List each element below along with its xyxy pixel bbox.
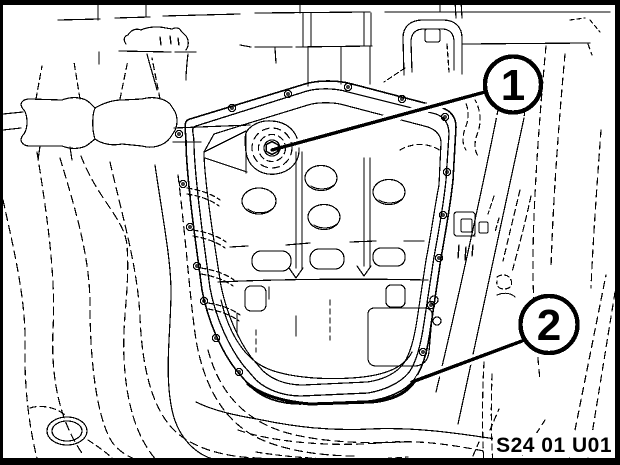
svg-text:1: 1 [501,61,525,110]
svg-text:S24 01 U01: S24 01 U01 [496,434,612,457]
svg-text:2: 2 [537,301,561,350]
